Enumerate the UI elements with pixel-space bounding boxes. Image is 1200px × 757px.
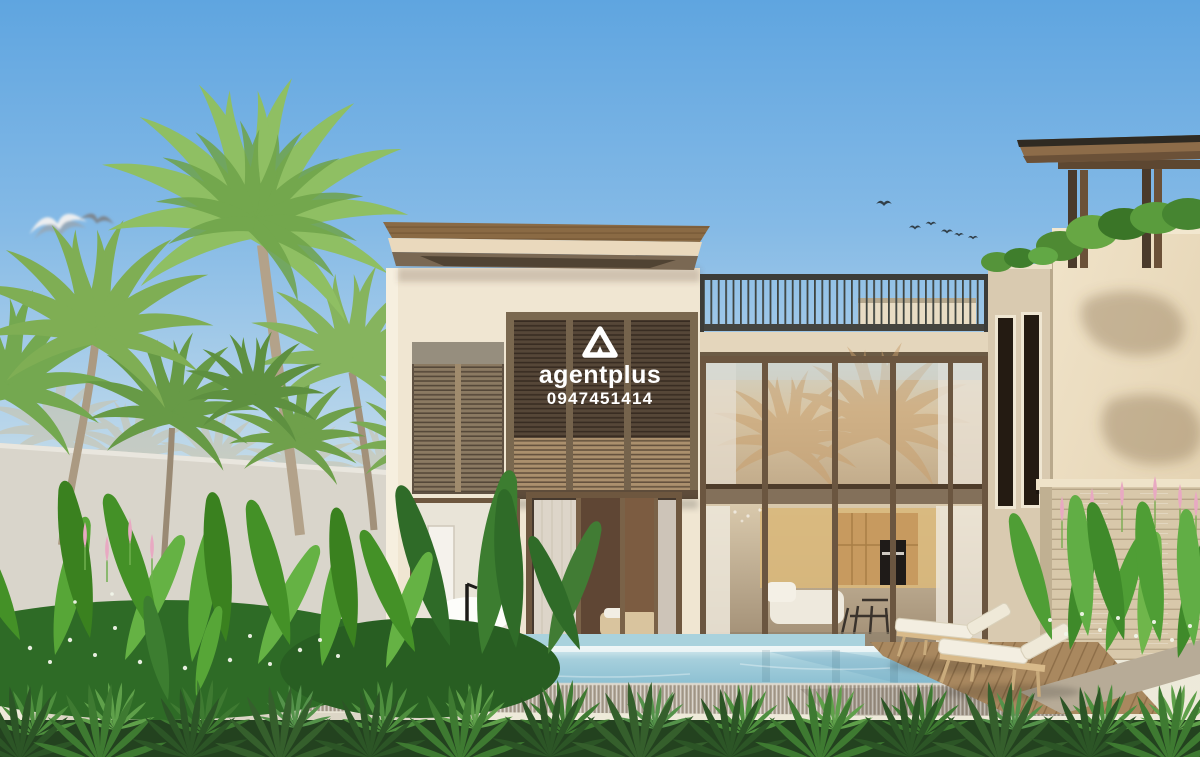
roof-overhang xyxy=(383,222,710,270)
louver-shutter-left xyxy=(412,342,504,494)
louver-shutter-center xyxy=(506,312,698,509)
terrace-railing xyxy=(700,274,988,332)
glass-curtain-wall xyxy=(700,332,988,656)
roof-terrace xyxy=(700,274,988,332)
villa-render: agentplus 0947451414 xyxy=(0,0,1200,757)
